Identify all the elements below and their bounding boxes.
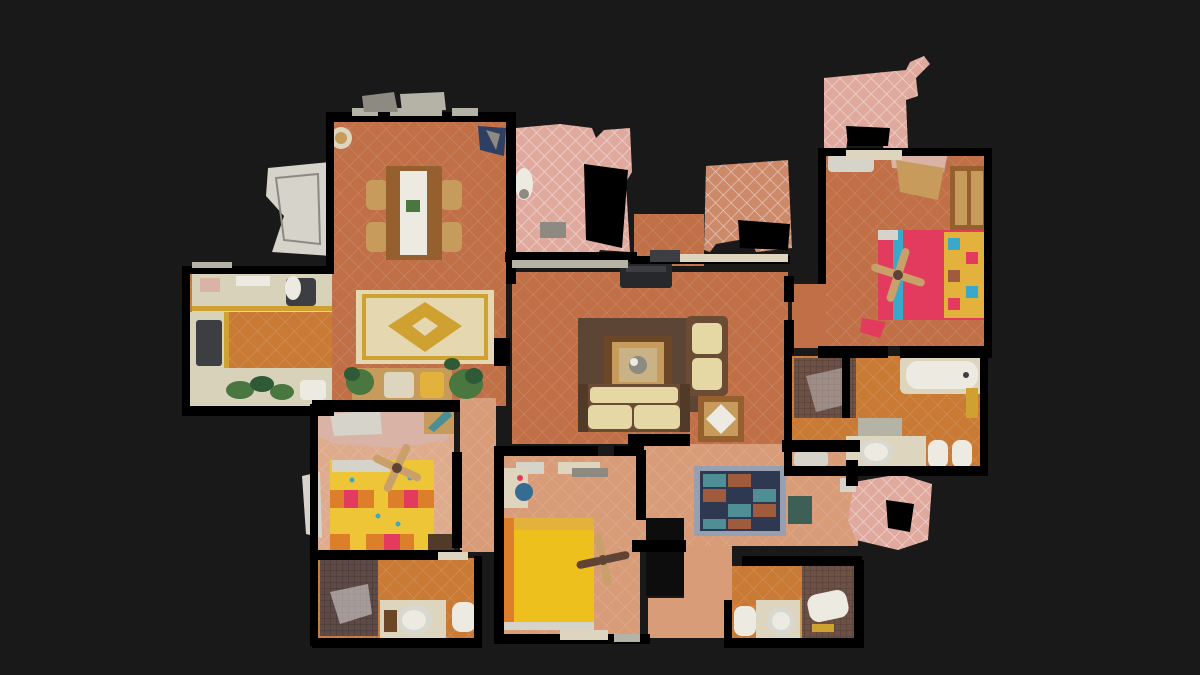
wood-stool	[384, 610, 397, 632]
bed-floral-dot	[376, 514, 381, 519]
wall	[628, 434, 690, 446]
wall	[182, 266, 190, 414]
floorplan-3d-scan-canvas[interactable]	[0, 0, 1200, 675]
wall	[842, 352, 850, 418]
gold-towel	[812, 624, 834, 632]
check-square	[344, 490, 358, 508]
window-ledge	[678, 254, 788, 262]
wall	[724, 638, 864, 648]
rug-cell	[728, 489, 751, 502]
wardrobe-artifact-highlight	[330, 410, 382, 436]
wall	[784, 350, 792, 472]
dining-table-runner	[400, 171, 427, 255]
rug-cell	[728, 519, 751, 529]
wall	[632, 540, 686, 552]
sofa-vertical-cushion	[692, 358, 722, 390]
small-plant	[444, 358, 460, 370]
rug-cell	[703, 489, 726, 502]
pink-fragment-hole	[886, 500, 914, 532]
window-sill	[452, 108, 478, 116]
pillow-square	[948, 270, 960, 282]
rug-cell	[753, 489, 776, 502]
rug-cell	[703, 504, 726, 517]
gold-towel	[966, 388, 978, 418]
wall	[784, 320, 794, 354]
fallen-door-artifact	[794, 452, 828, 466]
wall	[494, 448, 504, 644]
pillow-square	[948, 238, 960, 250]
bidet	[952, 440, 972, 468]
terrace-planter-rim	[519, 189, 529, 199]
bath-backsplash	[858, 418, 902, 438]
check-square	[374, 490, 388, 508]
bed-floral-dot	[350, 478, 355, 483]
blue-office-chair	[515, 483, 533, 501]
wall	[326, 112, 334, 274]
closet-hall-floor-tiles	[460, 398, 496, 552]
wall	[818, 148, 826, 284]
wall	[312, 400, 460, 412]
vegetables	[226, 381, 254, 399]
bench-cushion	[384, 372, 414, 398]
tv-highlight	[626, 266, 666, 272]
wall	[312, 638, 482, 648]
bench-cushion-yellow	[420, 372, 444, 398]
dark-window-box	[650, 250, 680, 262]
gold-bed-head-trim	[514, 518, 594, 530]
counter-item	[200, 278, 220, 292]
window-sill	[560, 630, 608, 640]
terrace-3-scan-hole	[846, 126, 890, 146]
wall-clock-face	[335, 132, 347, 144]
dining-chair	[440, 180, 462, 210]
sofa-armrest	[680, 384, 690, 432]
terrace-2-scan-hole	[738, 220, 790, 250]
rug-cell	[728, 474, 751, 487]
wall	[474, 556, 482, 648]
wall	[980, 354, 988, 472]
check-square	[404, 490, 418, 508]
dining-chair	[366, 222, 388, 252]
counter-item	[236, 276, 270, 286]
desk-item-red	[517, 475, 523, 481]
rug-cell	[753, 504, 776, 517]
wall	[818, 346, 888, 358]
teal-door-mat	[788, 496, 812, 524]
dining-chair	[440, 222, 462, 252]
wardrobe-panel	[955, 171, 967, 225]
pillow-square	[948, 298, 960, 310]
toilet	[734, 606, 756, 636]
pillow-square	[966, 286, 978, 298]
sink-basin	[864, 443, 888, 461]
gray-door-mat	[540, 222, 566, 238]
sofa-seat-cushion	[634, 405, 680, 429]
wall	[846, 460, 858, 486]
bathtub-drain	[963, 372, 969, 378]
pillow-square	[966, 252, 978, 264]
window-ledge	[512, 260, 628, 268]
wardrobe-panel	[971, 171, 983, 225]
terrace-1-scan-hole	[584, 164, 628, 248]
wall	[310, 404, 318, 560]
rug-cell	[703, 474, 726, 487]
sofa-back-cushions	[590, 387, 678, 403]
window-ledge	[846, 150, 902, 160]
kitchen-counter-trim	[192, 306, 332, 311]
rug-cell	[703, 519, 726, 529]
kitchen-sink-basin	[285, 276, 301, 300]
wall	[742, 556, 862, 566]
wall	[900, 346, 992, 358]
gold-bed	[502, 518, 594, 628]
wall	[784, 276, 794, 302]
window-sill	[192, 262, 232, 268]
table-centerpiece	[406, 200, 420, 212]
dark-bench	[428, 534, 454, 552]
bed-floral-dot	[396, 522, 401, 527]
wall	[310, 556, 318, 646]
wall-notch	[494, 338, 510, 366]
shelf-mirror	[572, 468, 608, 477]
screenshot-root	[0, 0, 1200, 675]
sofa-vertical-cushion	[692, 323, 722, 354]
round-basin	[402, 610, 426, 630]
curtain-blob	[400, 92, 446, 112]
vegetables	[270, 384, 294, 400]
sofa-seat-cushion	[588, 405, 632, 429]
wall	[452, 452, 462, 548]
potted-plant-leaves	[344, 367, 360, 381]
toilet	[928, 440, 948, 468]
window-sill	[438, 552, 468, 560]
scan-void	[646, 518, 684, 596]
vegetables	[250, 376, 274, 392]
potted-plant-leaves	[465, 368, 483, 384]
wall	[854, 560, 864, 646]
wall	[782, 440, 860, 452]
wall	[636, 450, 646, 520]
master-bedroom-entry-floor	[792, 284, 826, 348]
sofa-armrest	[578, 384, 588, 432]
gold-bed-foot-sheet	[502, 622, 594, 630]
toilet	[452, 602, 476, 632]
window-sill	[614, 634, 640, 642]
rug-cell	[728, 504, 751, 517]
wall	[984, 148, 992, 354]
kitchen-dish	[300, 380, 326, 400]
wall	[494, 446, 598, 456]
wall	[784, 466, 988, 476]
round-basin	[772, 612, 790, 630]
rug-cell	[753, 474, 776, 487]
rug-cell	[753, 519, 776, 529]
dining-chair	[366, 180, 388, 210]
table-tray-items	[630, 358, 638, 366]
kitchen-stove	[196, 320, 222, 366]
bed-sheet-fold	[878, 230, 898, 240]
wall	[818, 148, 992, 156]
corridor-floor-2	[648, 598, 688, 638]
